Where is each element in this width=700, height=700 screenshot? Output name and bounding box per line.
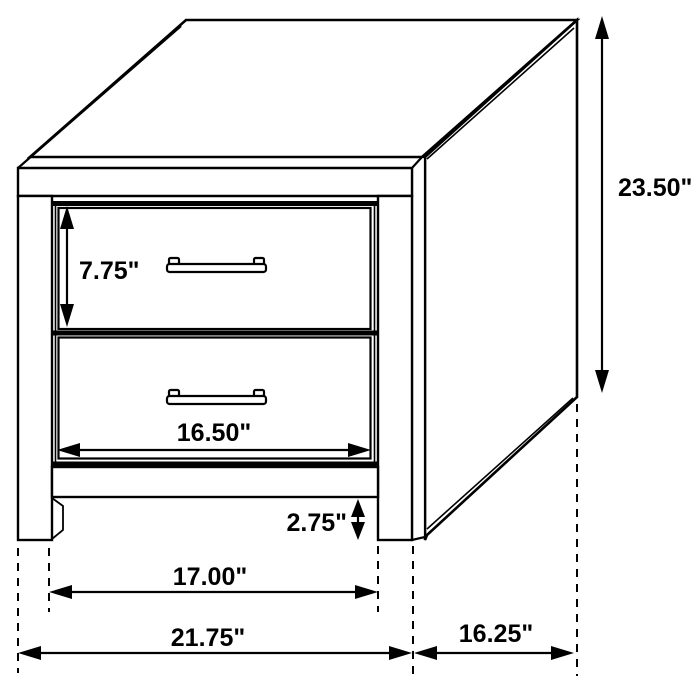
right-leg xyxy=(378,196,412,540)
handle-bar xyxy=(167,264,266,272)
dimension-label-base-height: 2.75" xyxy=(286,509,347,537)
arrowhead-right-icon xyxy=(355,585,378,599)
arrowhead-left-icon xyxy=(414,646,437,660)
dimension-base-height: 2.75" xyxy=(286,499,365,540)
arrowhead-right-icon xyxy=(551,646,574,660)
bottom-rail xyxy=(52,467,378,497)
left-leg xyxy=(18,196,52,540)
dimension-label-leg-spacing: 17.00" xyxy=(173,563,247,591)
arrowhead-up-icon xyxy=(351,499,365,517)
nightstand-dimension-diagram: 23.50" 7.75" 16.50" 2.75" 17.00" 21.75" xyxy=(0,0,700,700)
diagram-drawing: 23.50" 7.75" 16.50" 2.75" 17.00" 21.75" xyxy=(0,0,700,700)
arrowhead-right-icon xyxy=(389,646,412,660)
top-front-band xyxy=(18,168,412,196)
dimension-label-overall-depth: 16.25" xyxy=(459,620,533,648)
arrowhead-down-icon xyxy=(595,370,609,393)
arrowhead-left-icon xyxy=(18,646,41,660)
arrowhead-down-icon xyxy=(351,522,365,540)
dimension-label-drawer-width: 16.50" xyxy=(177,419,251,447)
dimension-overall-height: 23.50" xyxy=(595,16,692,393)
dimension-leg-spacing: 17.00" xyxy=(49,546,378,612)
dimension-label-overall-height: 23.50" xyxy=(618,174,692,202)
arrowhead-left-icon xyxy=(49,585,72,599)
corner-edge-strip xyxy=(412,157,425,540)
left-leg-inner-sliver xyxy=(52,498,63,539)
dimension-label-drawer-height: 7.75" xyxy=(79,257,140,285)
arrowhead-up-icon xyxy=(595,16,609,39)
front-right-corner-strip xyxy=(412,157,425,540)
handle-bar xyxy=(167,396,266,404)
dimension-label-overall-width: 21.75" xyxy=(171,624,245,652)
